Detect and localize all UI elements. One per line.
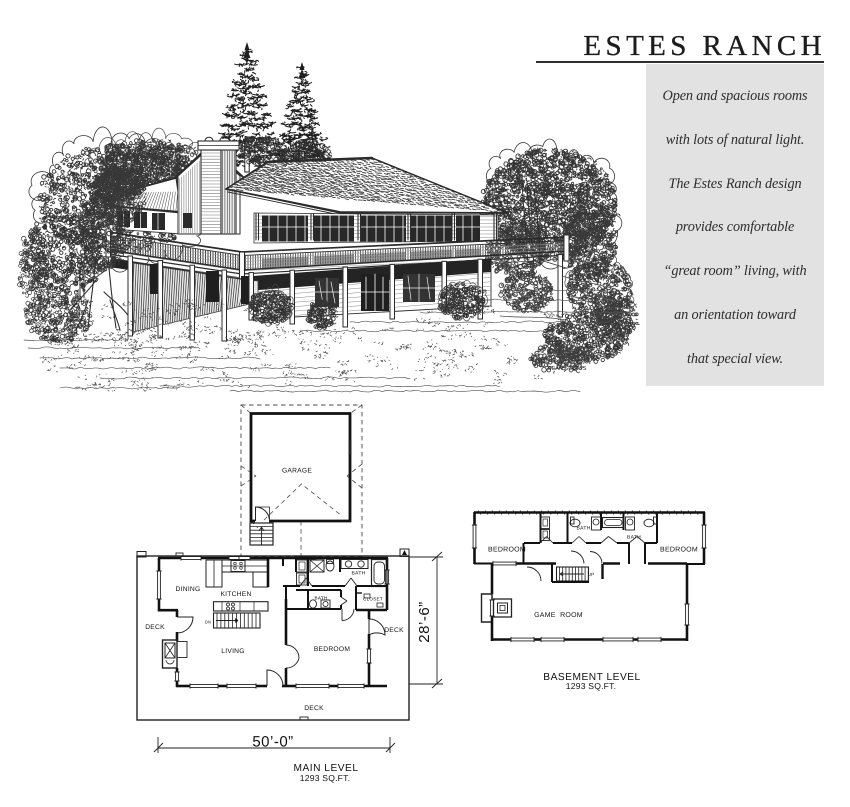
svg-text:LIVING: LIVING [221,648,244,655]
svg-text:DN: DN [205,619,212,624]
svg-text:DECK: DECK [384,627,404,634]
svg-text:DEAN SCUTTS: DEAN SCUTTS [548,366,587,372]
svg-text:1293 SQ.FT.: 1293 SQ.FT. [300,773,350,783]
svg-text:BATH: BATH [352,570,366,576]
svg-text:CLOSET: CLOSET [363,596,383,601]
svg-text:50’-0”: 50’-0” [252,733,293,750]
svg-text:1293 SQ.FT.: 1293 SQ.FT. [566,681,616,691]
svg-text:GAME ROOM: GAME ROOM [534,612,583,619]
svg-text:28’-6”: 28’-6” [416,601,433,642]
svg-text:BEDROOM: BEDROOM [314,646,350,653]
svg-text:DECK: DECK [304,705,324,712]
svg-text:BATH: BATH [577,525,591,531]
svg-text:BEDROOM: BEDROOM [660,546,698,553]
svg-text:GARAGE: GARAGE [282,467,312,474]
svg-text:BEDROOM: BEDROOM [488,546,526,553]
svg-text:KITCHEN: KITCHEN [220,591,251,598]
svg-text:DINING: DINING [176,586,201,593]
svg-text:DECK: DECK [145,624,165,631]
svg-text:BATH: BATH [627,534,641,540]
svg-text:UP: UP [588,572,595,577]
